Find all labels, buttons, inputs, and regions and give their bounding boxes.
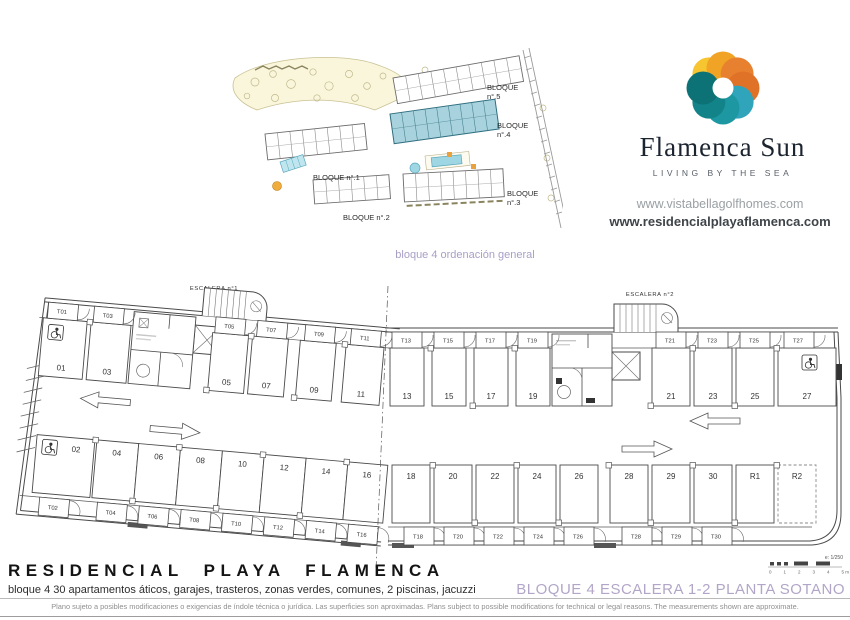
scale-tick: 3 [813,570,816,575]
trastero-T13: T13 [392,332,433,348]
door-arc [77,308,89,321]
pillar [470,403,476,409]
door-arc [732,528,743,542]
pillar [648,520,654,526]
trastero-label: T16 [356,532,366,539]
pillar [774,346,780,352]
stall-number: 04 [112,448,122,458]
pillar [732,520,738,526]
stall-number: 15 [445,392,454,401]
parking-stall-09: 09 [291,340,336,404]
pillar [690,346,696,352]
trastero-label: T24 [533,534,544,540]
trastero-label: T18 [413,534,423,540]
trastero-label: T25 [749,338,759,344]
parking-stall-15: 15 [428,346,466,407]
trastero-T17: T17 [476,332,517,348]
stall-number: 08 [196,456,206,466]
trastero-T20: T20 [444,527,485,545]
outer-wall-top-right [385,328,838,332]
bloque-1-label: BLOQUE n°.1 [313,173,360,182]
bloque-3-building [403,169,505,206]
stall-number: 09 [309,385,319,395]
brand-block: Flamenca Sun LIVING BY THE SEA [600,46,845,178]
stall-number: 05 [222,378,232,388]
pillar [774,463,780,469]
scale-tick: 2 [798,570,801,575]
disclaimer-text: Plano sujeto a posibles modificaciones o… [0,602,850,611]
trastero-label: T27 [793,338,803,344]
trastero-label: T04 [105,510,116,517]
stall-number: 03 [102,367,112,377]
wheelchair-icon [48,324,64,340]
svg-text:n°.5: n°.5 [487,92,500,101]
door-arc [68,501,81,516]
stall-number: 25 [751,392,760,401]
door-arc [126,506,139,521]
drive-arrow-left-1 [80,390,131,410]
trastero-label: T02 [48,505,58,512]
scale-tick: 0 [769,570,772,575]
brand-tagline: LIVING BY THE SEA [600,168,845,178]
wheelchair-icon [41,439,57,455]
bloque-5-label: BLOQUE [487,83,518,92]
trastero-label: T03 [102,313,112,320]
floor-plan: ESCALERA n°1 ESCALERA n°2 [0,278,850,578]
stall-number: 21 [667,392,676,401]
stall-number: 12 [279,463,289,473]
parking-stall-30: 30 [690,463,732,524]
trastero-label: T20 [453,534,463,540]
elevator-2 [612,352,640,380]
stall-number: R1 [750,472,761,481]
pillar [93,437,99,443]
bloque-3-label: BLOQUE [507,189,538,198]
scale-tick: 1 [784,570,787,575]
project-subtitle: bloque 4 30 apartamentos áticos, garajes… [8,584,476,596]
roadway [523,48,563,228]
door-arc [728,335,739,347]
trastero-T28: T28 [622,527,663,545]
trastero-label: T07 [266,328,276,335]
scale-ratio: e: 1/250 [825,555,843,561]
scale-tick: 4 [827,570,830,575]
pillar [248,333,254,339]
stall-number: 10 [238,459,248,469]
stall-number: 19 [529,392,538,401]
websites-block: www.vistabellagolfhomes.com www.residenc… [590,196,850,230]
parking-stall-21: 21 [648,348,690,409]
stall-number: 14 [321,467,331,477]
trastero-label: T30 [711,534,721,540]
stall-number: 18 [407,472,416,481]
pillar [606,463,612,469]
utility-rooms-2 [552,334,612,406]
trastero-label: T22 [493,534,503,540]
trastero-label: T11 [360,336,370,343]
trastero-label: T28 [631,534,641,540]
pillar [260,452,266,458]
bloque-4-building [390,99,499,143]
trastero-label: T17 [485,338,495,344]
pillar [213,505,219,511]
trastero-T16: T16 [347,524,390,546]
trastero-label: T23 [707,338,717,344]
parking-stall-04: 04 [88,437,139,501]
divider-line [0,598,850,599]
door-arc [210,513,223,528]
parking-stall-26: 26 [556,465,598,526]
door-arc [287,326,299,339]
green-area [233,57,407,110]
pillar [648,403,654,409]
parking-stall-23: 23 [690,346,732,407]
stall-number: 29 [667,472,676,481]
parking-stall-01: 01 [38,318,87,380]
parking-stall-20: 20 [430,463,472,524]
trastero-label: T26 [573,534,583,540]
trastero-label: T01 [57,309,67,316]
stall-number: 13 [403,392,412,401]
door-arc [814,335,825,347]
parking-stall-28: 28 [606,463,648,524]
stall-number: 07 [261,381,271,391]
stall-number: 20 [449,472,458,481]
wing-left: 01T0103T0305T0507T0709T0911T1102T0204T04… [11,278,409,550]
trastero-label: T10 [231,521,241,528]
trastero-T23: T23 [698,332,739,348]
flamenca-sun-logo [675,46,771,130]
parking-stall-29: 29 [648,465,690,526]
sheet-title: BLOQUE 4 ESCALERA 1-2 PLANTA SOTANO [516,581,845,598]
stall-number: 30 [709,472,718,481]
trastero-T18: T18 [404,527,445,545]
pillar [342,341,348,347]
trastero-label: T08 [189,518,199,525]
pillar [297,513,303,519]
stall-number: 27 [803,392,812,401]
pillar [732,403,738,409]
trastero-label: T12 [273,525,283,532]
trastero-label: T19 [527,338,537,344]
drive-arrow-right-1 [149,421,200,441]
parking-stall-R1: R1 [732,465,774,526]
parking-stall-25: 25 [732,348,774,409]
trastero-label: T09 [314,332,324,339]
door-arc [334,330,346,343]
trastero-T24: T24 [524,527,565,545]
wing-right: 13T1315T1517T1719T1921T2123T2325T2527T27… [385,304,842,548]
website-link-2[interactable]: www.residencialplayaflamenca.com [590,213,850,231]
site-plan: BLOQUE n°.5 BLOQUE n°.4 BLOQUE n°.3 BLOQ… [225,48,563,238]
parking-stall-17: 17 [470,348,508,409]
door-arc [464,335,475,347]
door-arc [293,520,306,535]
door-arc [377,528,390,543]
stair-1 [202,288,268,321]
trastero-label: T14 [314,529,325,536]
divider-line [0,616,850,617]
project-title: RESIDENCIAL PLAYA FLAMENCA [8,561,445,581]
stall-number: 22 [491,472,500,481]
svg-text:n°.4: n°.4 [497,130,510,139]
parking-stall-13: 13 [390,348,424,406]
door-arc [252,517,265,532]
trastero-T15: T15 [434,332,475,348]
parking-stall-03: 03 [82,319,131,383]
stall-number: 01 [56,363,66,373]
brand-name: Flamenca Sun [600,132,845,163]
trastero-T26: T26 [564,527,605,545]
parking-stall-R2: R2 [774,463,816,524]
trastero-label: T05 [224,324,234,331]
parking-stall-24: 24 [514,463,556,524]
scale-tick: 5 m [842,570,850,575]
pillar [472,520,478,526]
bloque-5-building [393,56,524,104]
parking-stall-07: 07 [244,333,289,397]
parking-stall-11: 11 [337,341,384,405]
parking-stall-19: 19 [512,346,550,407]
trastero-T29: T29 [662,527,703,545]
trastero-label: T06 [147,514,157,521]
pillar [690,463,696,469]
website-link-1[interactable]: www.vistabellagolfhomes.com [590,196,850,213]
brochure-page: BLOQUE n°.5 BLOQUE n°.4 BLOQUE n°.3 BLOQ… [0,0,850,620]
parking-stall-18: 18 [392,465,430,523]
stair-2 [614,304,678,332]
plan-caption: bloque 4 ordenación general [320,249,610,261]
trastero-label: T21 [665,338,675,344]
stall-number: 26 [575,472,584,481]
pillar [129,498,135,504]
scale-bar: e: 1/250 012345 m [768,555,849,575]
bloque-2-label: BLOQUE n°.2 [343,213,390,222]
parking-stall-27: 27 [774,346,836,407]
trastero-label: T15 [443,338,453,344]
pillar [556,520,562,526]
pillar [87,319,93,325]
pillar [203,387,209,393]
bloque-4-label: BLOQUE [497,121,528,130]
trastero-label: T29 [671,534,681,540]
pillar [514,463,520,469]
utility-rooms-1 [128,312,196,389]
parking-stall-02: 02 [32,435,95,498]
pillar [176,444,182,450]
escalera-2-label: ESCALERA n°2 [626,292,674,298]
pillar [430,463,436,469]
trastero-T30: T30 [702,527,743,545]
stall-number: 02 [71,445,81,455]
bloque-1-building [265,124,367,160]
stall-number: 16 [362,470,372,480]
svg-text:n°.3: n°.3 [507,198,520,207]
trastero-T27: T27 [784,332,825,348]
stall-number: 24 [533,472,542,481]
drive-arrow-left-2 [690,413,740,429]
parking-stall-22: 22 [472,465,514,526]
stall-number: R2 [792,472,803,481]
stall-number: 06 [154,452,164,462]
door-arc [168,509,181,524]
stall-number: 28 [625,472,634,481]
pillar [344,459,350,465]
drive-arrow-right-2 [622,441,672,457]
door-arc [335,524,348,539]
trastero-label: T13 [401,338,411,344]
wall-vent [594,543,616,548]
stall-number: 23 [709,392,718,401]
stall-number: 17 [487,392,496,401]
door-arc [594,528,605,542]
pillar [291,395,297,401]
pillar [428,346,434,352]
wheelchair-icon [802,355,817,370]
pillar [512,346,518,352]
trastero-T22: T22 [484,527,525,545]
stall-number: 11 [356,389,366,399]
